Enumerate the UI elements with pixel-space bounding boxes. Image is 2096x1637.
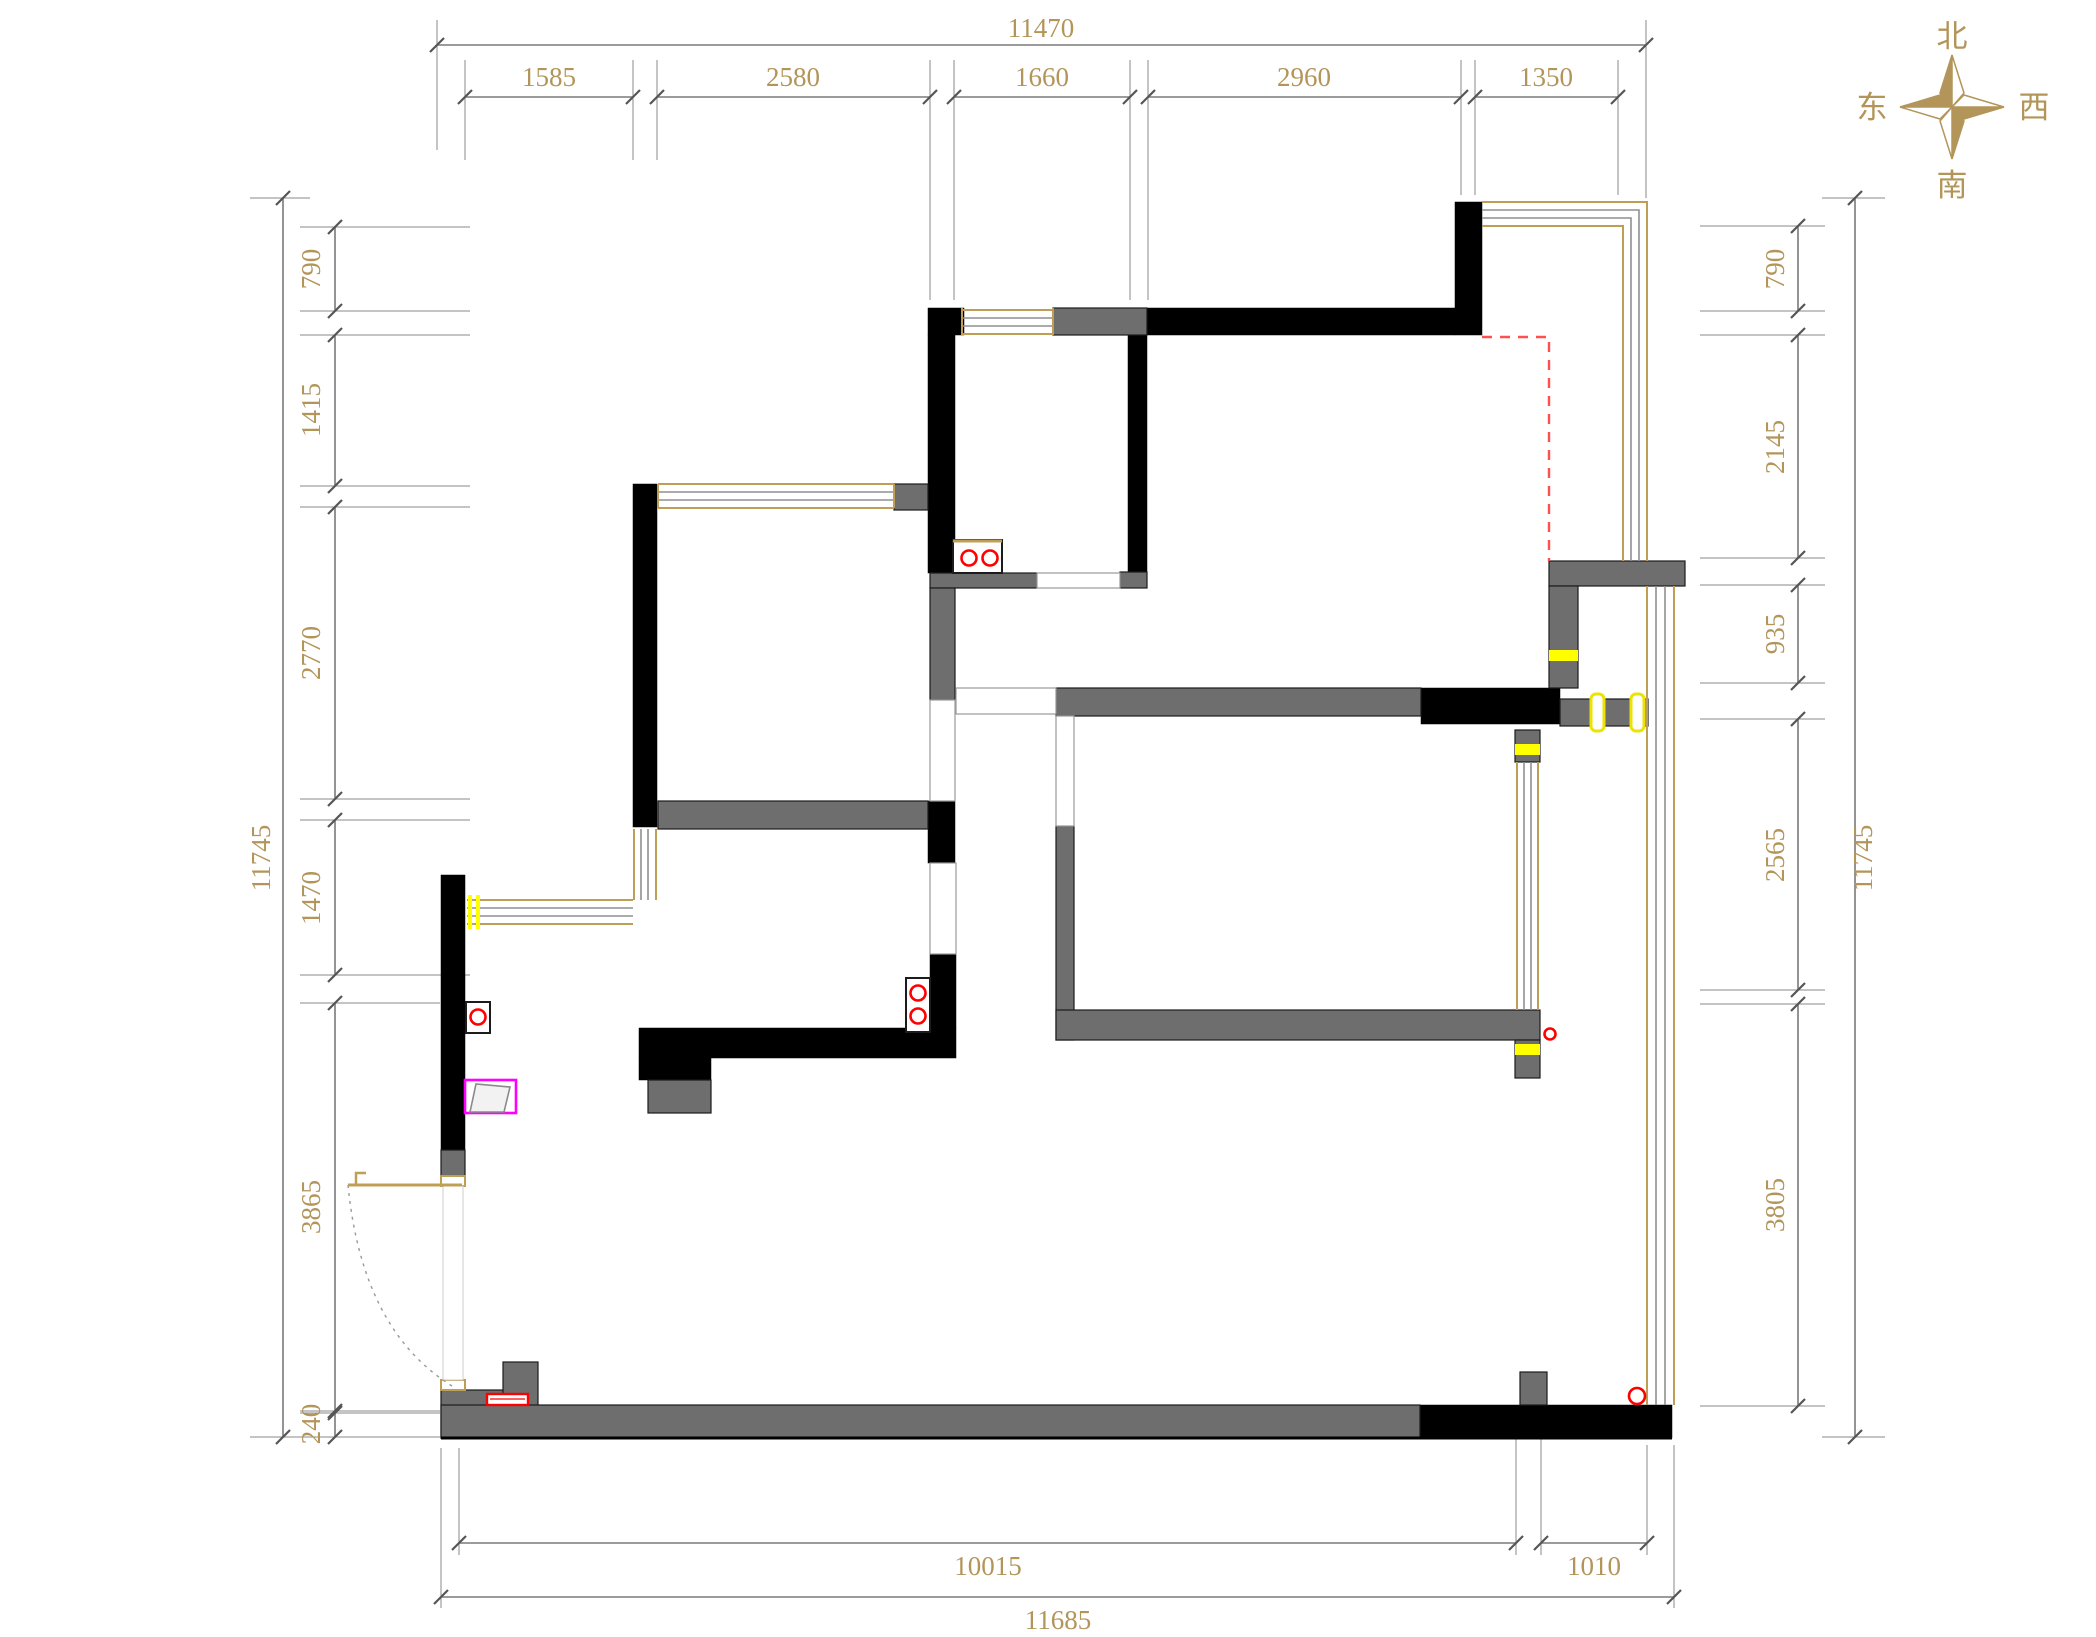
- door-handle-icon: [356, 1173, 366, 1185]
- window-balcony-wrap: [1482, 202, 1647, 561]
- wall-kitchen-bottom: [930, 573, 1037, 588]
- wall-top-main: [1147, 308, 1455, 335]
- dim-left-seg-1: 790: [296, 249, 326, 290]
- dim-right-seg-2: 2145: [1760, 420, 1790, 474]
- yellow-mark-bedroom-bottom: [1515, 1044, 1540, 1055]
- dim-left-seg-4: 1470: [296, 871, 326, 925]
- dimension-bottom-extensions: [441, 1412, 1674, 1608]
- window-top-kitchen: [962, 308, 1053, 335]
- dim-right-seg-1: 790: [1760, 249, 1790, 290]
- wall-kitchen-right: [1128, 335, 1147, 572]
- red-dashed-boundary: [1482, 337, 1549, 561]
- wall-bedroom-bottom: [1056, 1010, 1540, 1040]
- dim-bottom-total: 11685: [1025, 1605, 1092, 1635]
- compass-star-icon: [1900, 55, 2004, 159]
- dim-top-seg-3: 1660: [1015, 62, 1069, 92]
- yellow-mark-right-step: [1549, 650, 1578, 661]
- wall-mid-post: [928, 801, 955, 863]
- magenta-equipment-box: [465, 1080, 516, 1113]
- dim-left-seg-6: 240: [296, 1404, 326, 1445]
- magenta-box-flap: [470, 1084, 510, 1112]
- compass-north-label: 北: [1937, 19, 1968, 54]
- dim-bottom-seg-1: 10015: [954, 1551, 1022, 1581]
- door-openings: [930, 573, 1120, 954]
- dim-top-seg-5: 1350: [1519, 62, 1573, 92]
- bath-symbol: [906, 978, 930, 1032]
- wall-kitchen-left: [928, 335, 955, 573]
- door-swing-arc: [348, 1185, 452, 1386]
- dim-bottom-seg-2: 1010: [1567, 1551, 1621, 1581]
- post-kitchen-door: [1120, 572, 1147, 588]
- wall-below-kitchen: [930, 588, 955, 700]
- yellow-pill-2: [1631, 694, 1644, 731]
- wall-room2-bottom: [658, 801, 928, 829]
- floor-plan-canvas: 11470 1585 2580 1660 2960 1350: [0, 0, 2096, 1637]
- dim-right-seg-4: 2565: [1760, 828, 1790, 882]
- wall-bedroom-top: [1056, 688, 1421, 716]
- compass-west-label: 西: [2019, 90, 2050, 125]
- dim-left-total: 11745: [246, 825, 276, 892]
- wall-room2-left: [633, 484, 657, 827]
- dim-left-seg-2: 1415: [296, 383, 326, 437]
- wall-bottom-gray: [441, 1405, 1420, 1438]
- dimension-right: 790 2145 935 2565 3805 11745: [1700, 191, 1885, 1444]
- dim-left-seg-3: 2770: [296, 626, 326, 680]
- opening-room2-door: [930, 700, 955, 801]
- wall-hall-right: [1421, 688, 1560, 724]
- red-circle-bedroom-corner: [1545, 1029, 1556, 1040]
- wall-top-gray: [1053, 308, 1147, 335]
- window-right-column: [1647, 586, 1674, 1405]
- dimension-bottom: 10015 1010 11685: [434, 1412, 1681, 1635]
- red-circle-bottom-right: [1629, 1388, 1645, 1404]
- compass-east-label: 东: [1857, 90, 1888, 125]
- wall-mid-stub: [648, 1080, 711, 1113]
- post-bottom-right: [1520, 1372, 1547, 1405]
- entry-door: [348, 1173, 465, 1390]
- window-room2-left-vertical: [634, 829, 656, 900]
- dimension-left: 11745 790 1415 2770 1470 3865 240: [246, 191, 470, 1444]
- walls-gray: [441, 308, 1685, 1438]
- wall-bath-post: [930, 954, 956, 1028]
- compass-rose: 北 南 东 西: [1857, 19, 2050, 203]
- opening-bedroom-left: [1056, 716, 1074, 826]
- kitchen-stove-symbol: [953, 540, 1002, 573]
- opening-kitchen-door: [1037, 573, 1120, 588]
- wall-bottom-black: [1420, 1405, 1672, 1438]
- window-living-left: [467, 895, 633, 929]
- window-bedroom-right: [1517, 762, 1538, 1010]
- compass-south-label: 南: [1937, 168, 1968, 203]
- wall-balcony-bottom: [1549, 561, 1685, 586]
- wall-bedroom-left: [1056, 826, 1074, 1040]
- dim-top-total: 11470: [1008, 13, 1075, 43]
- living-wall-symbol: [466, 1002, 490, 1033]
- wall-mid-bottom-step: [639, 1058, 711, 1080]
- dim-left-seg-5: 3865: [296, 1180, 326, 1234]
- post-room2-window: [894, 484, 928, 510]
- wall-living-left: [441, 875, 465, 1150]
- dim-top-seg-1: 1585: [522, 62, 576, 92]
- wall-right-step: [1549, 586, 1578, 688]
- dim-right-total: 11745: [1848, 825, 1878, 892]
- opening-bath-door: [930, 863, 956, 954]
- yellow-mark-bedroom-top: [1515, 744, 1540, 755]
- wall-balcony-left: [1455, 202, 1482, 335]
- dim-top-seg-2: 2580: [766, 62, 820, 92]
- dim-top-seg-4: 2960: [1277, 62, 1331, 92]
- door-opening-gap: [443, 1186, 463, 1380]
- dim-right-seg-5: 3805: [1760, 1178, 1790, 1232]
- window-room2-top: [658, 484, 894, 508]
- yellow-pill-1: [1591, 694, 1604, 731]
- wall-top-left-post: [928, 308, 964, 335]
- dimension-bottom-ticks: [434, 1536, 1681, 1604]
- dim-right-seg-3: 935: [1760, 614, 1790, 655]
- opening-bedroom-door: [956, 688, 1056, 714]
